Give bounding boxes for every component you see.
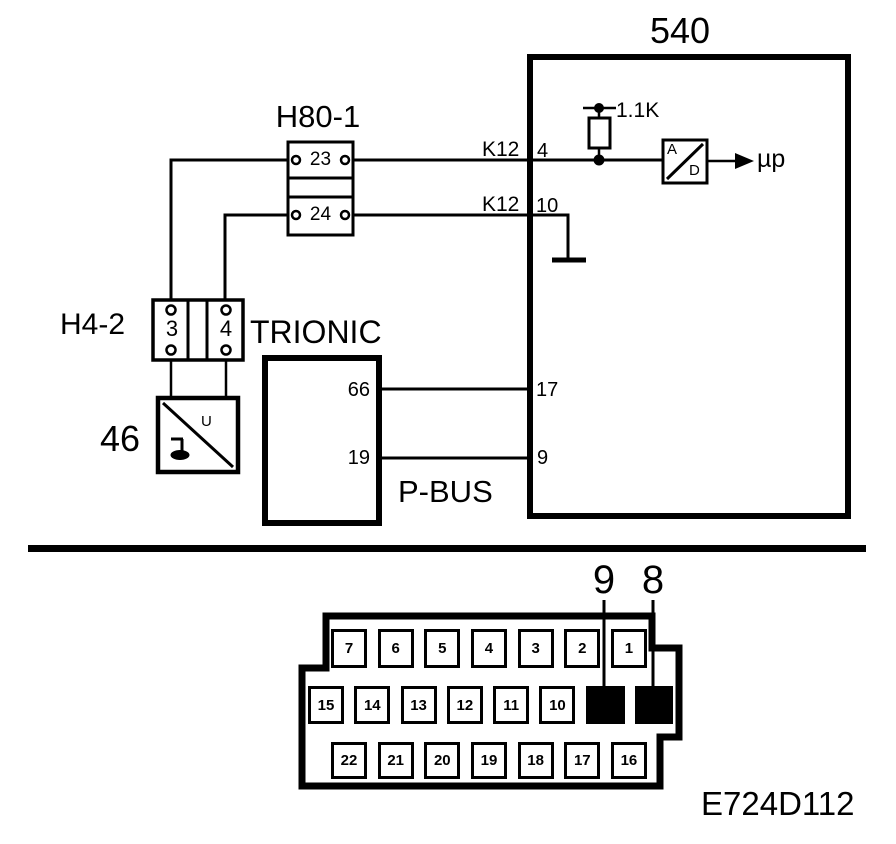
h4-pin3-top-terminal [167, 306, 176, 315]
h4-pin4-bottom-terminal [222, 346, 231, 355]
pin-cell-4: 4 [471, 629, 507, 668]
pbus-label: P-BUS [398, 476, 493, 507]
pin-cell-8-filled [635, 686, 673, 724]
connector-row-bottom: 22 21 20 19 18 17 16 [331, 742, 647, 779]
pin-cell-2: 2 [564, 629, 600, 668]
ecu-pin-4-label: 4 [537, 141, 548, 161]
sensor-key-base-icon [171, 450, 190, 460]
divider-line [28, 545, 866, 552]
h80-pin-24-label: 24 [288, 205, 353, 224]
callout-9-label: 9 [590, 560, 618, 600]
h80-pin-23-label: 23 [288, 150, 353, 169]
pin-cell-10: 10 [539, 686, 575, 724]
pin-cell-9-filled [586, 686, 625, 724]
pin-cell-6: 6 [378, 629, 414, 668]
sensor-u-label: U [201, 414, 212, 429]
trionic-label: TRIONIC [250, 316, 382, 348]
ad-a-label: A [667, 142, 677, 157]
h4-pin-4-label: 4 [211, 318, 241, 340]
microprocessor-label: µp [757, 147, 785, 172]
wire-pin24-to-h4 [225, 215, 288, 300]
h4-pin4-top-terminal [222, 306, 231, 315]
pin-cell-19: 19 [471, 742, 507, 779]
callout-8-label: 8 [639, 560, 667, 600]
pin-cell-18: 18 [518, 742, 554, 779]
wire-k12-bottom-label: K12 [482, 194, 519, 215]
connector-row-middle: 15 14 13 12 11 10 [308, 686, 673, 724]
pin-cell-13: 13 [401, 686, 437, 724]
trionic-pin-66-label: 66 [336, 380, 370, 400]
pin-cell-12: 12 [447, 686, 483, 724]
h4-2-label: H4-2 [60, 310, 125, 340]
pin-cell-3: 3 [518, 629, 554, 668]
pin-cell-1: 1 [611, 629, 647, 668]
resistor-symbol [589, 118, 610, 148]
sensor-46-label: 46 [96, 421, 144, 457]
trionic-pin-19-label: 19 [336, 448, 370, 468]
h4-pin-3-label: 3 [157, 318, 187, 340]
figure-code-label: E724D112 [701, 787, 855, 820]
pin-cell-7: 7 [331, 629, 367, 668]
ecu-540-box [530, 57, 848, 516]
pin-cell-20: 20 [424, 742, 460, 779]
h80-1-label: H80-1 [266, 101, 370, 132]
pin-cell-14: 14 [354, 686, 390, 724]
junction-dot-wire [594, 155, 605, 166]
pin-cell-21: 21 [378, 742, 414, 779]
pin-cell-15: 15 [308, 686, 344, 724]
resistor-value-label: 1.1K [616, 100, 659, 121]
ad-d-label: D [689, 163, 700, 178]
ecu-pin-9-label: 9 [537, 448, 548, 468]
pin-cell-11: 11 [493, 686, 529, 724]
pin-cell-17: 17 [564, 742, 600, 779]
pin-cell-16: 16 [611, 742, 647, 779]
wire-k12-top-label: K12 [482, 139, 519, 160]
pin-cell-22: 22 [331, 742, 367, 779]
pin-cell-5: 5 [424, 629, 460, 668]
ecu-pin-17-label: 17 [536, 380, 558, 400]
connector-row-top: 7 6 5 4 3 2 1 [331, 629, 647, 668]
h4-pin3-bottom-terminal [167, 346, 176, 355]
ecu-540-label: 540 [630, 13, 730, 49]
wire-pin23-to-h4 [171, 160, 288, 300]
arrow-head-icon [735, 153, 754, 169]
wiring-diagram: 540 H80-1 23 24 K12 4 K12 10 1.1K A D µp… [0, 0, 896, 844]
ecu-pin-10-label: 10 [536, 196, 558, 216]
wire-pin24-to-ground [353, 215, 568, 258]
